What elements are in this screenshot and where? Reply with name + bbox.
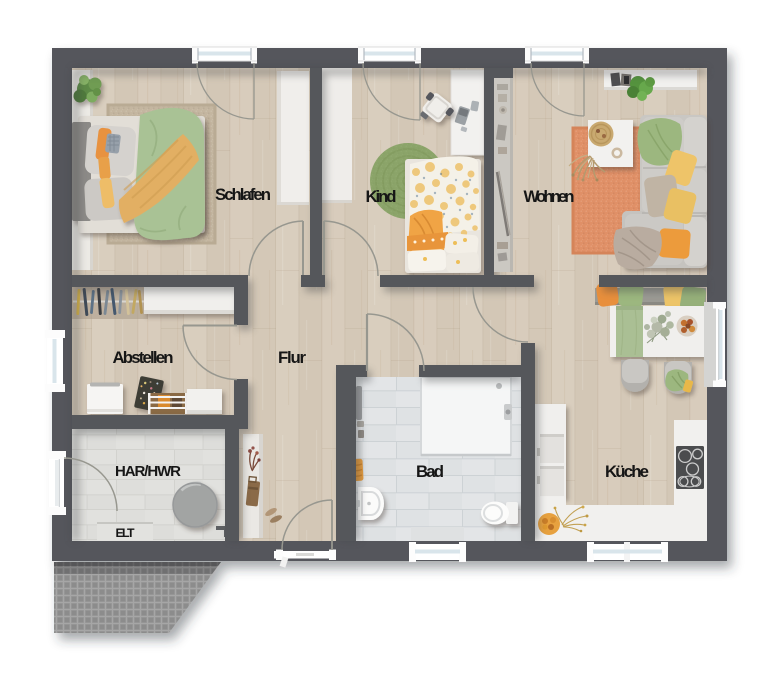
svg-text:Kind: Kind	[366, 187, 397, 206]
svg-text:ELT: ELT	[116, 526, 135, 540]
svg-text:Bad: Bad	[416, 462, 444, 481]
svg-text:Schlafen: Schlafen	[215, 185, 271, 204]
svg-text:HAR/HWR: HAR/HWR	[115, 463, 181, 480]
svg-text:Flur: Flur	[278, 348, 306, 367]
svg-text:Küche: Küche	[605, 462, 649, 481]
svg-text:Abstellen: Abstellen	[113, 348, 174, 367]
svg-text:Wohnen: Wohnen	[524, 187, 575, 206]
